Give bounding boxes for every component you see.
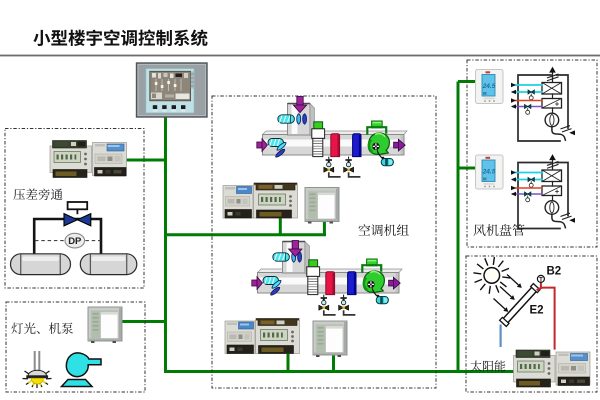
- svg-text:T: T: [539, 277, 543, 283]
- svg-text:B2: B2: [547, 266, 562, 278]
- svg-text:E2: E2: [530, 305, 544, 317]
- svg-text:DP: DP: [68, 236, 82, 247]
